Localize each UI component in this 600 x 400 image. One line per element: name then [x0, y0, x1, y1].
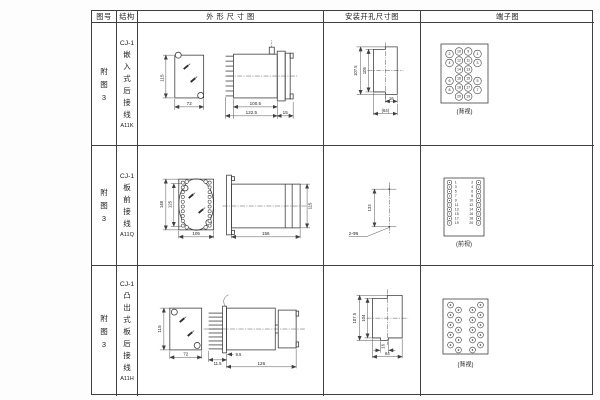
type-code-label: A11Q	[120, 232, 134, 238]
terminal-circle	[208, 219, 211, 222]
cutout-shape	[368, 42, 404, 98]
terminal-number: 17	[455, 217, 459, 221]
terminal-dot	[478, 218, 479, 219]
terminal-number: 4	[449, 61, 451, 65]
hole-dimensions: 133 2-Φ6	[349, 189, 389, 237]
type-code-label: A11H	[120, 376, 134, 382]
terminal-number: 19	[466, 95, 470, 99]
outline-cell-a11h: 115 72 11.5 9.5	[138, 266, 324, 396]
dim-width: 105	[192, 231, 200, 236]
terminal-number: 16	[457, 77, 461, 81]
terminal-dot	[449, 182, 450, 183]
cutout-dimensions: 107.5 104 16 64	[352, 295, 402, 358]
side-view	[226, 40, 298, 101]
terminal-number: 6	[471, 190, 473, 194]
dim-notch-width: 16	[389, 96, 394, 101]
outline-diagram-a11h: 115 72 11.5 9.5	[138, 266, 323, 396]
terminal-dot	[458, 339, 460, 341]
mounting-diagram-a11k: 107.5 105 16 (64)	[324, 23, 420, 146]
terminal-dot	[449, 213, 450, 214]
terminal-dot	[472, 319, 474, 321]
terminal-dot	[449, 222, 450, 223]
terminal-dot	[478, 209, 479, 210]
terminal-dot	[480, 314, 482, 316]
structure-row1: CJ-1 嵌入式后接线 A11K	[117, 23, 138, 146]
terminal-number: 12	[457, 59, 461, 63]
terminal-number: 13	[455, 208, 459, 212]
terminal-cell-a11k: 2468101214161820911131517191357 (背视)	[421, 23, 594, 146]
figure-no-text: 附图3	[100, 65, 108, 104]
mounting-diagram-a11h: 107.5 104 16 64	[324, 266, 420, 396]
dim-body-length: 100.5	[250, 101, 262, 106]
model-label: CJ-1	[120, 281, 134, 288]
terminal-dot	[450, 344, 452, 346]
terminal-diagram-a11h: (背视)	[421, 266, 594, 396]
terminal-dot	[480, 304, 482, 306]
terminal-dot	[478, 200, 479, 201]
dim-inner-height: 104	[361, 314, 366, 322]
terminal-circle	[181, 195, 184, 198]
terminal-circle	[208, 205, 211, 208]
terminal-number: 4	[471, 185, 473, 189]
terminal-dot	[472, 349, 474, 351]
terminal-dot	[480, 334, 482, 336]
terminal-number: 2	[471, 181, 473, 185]
terminal-number: 2	[449, 52, 451, 56]
terminal-dot	[450, 314, 452, 316]
terminal-circle	[181, 224, 184, 227]
mounting-cell-a11h: 107.5 104 16 64	[324, 266, 421, 396]
terminal-dot	[449, 218, 450, 219]
terminal-circle	[181, 186, 184, 189]
terminal-dot	[449, 191, 450, 192]
side-dimensions: 100.5 122.5 15	[226, 97, 294, 119]
terminal-number: 18	[469, 217, 473, 221]
terminal-number: 8	[471, 194, 473, 198]
terminal-dot	[480, 344, 482, 346]
terminal-grid-a11k: 2468101214161820911131517191357	[446, 48, 482, 101]
terminal-dot	[449, 204, 450, 205]
structure-label: 板前接线	[123, 182, 131, 230]
header-structure: 结构	[117, 11, 138, 23]
dim-front-width: 72	[183, 352, 189, 357]
hole-marks	[382, 182, 396, 233]
terminal-circle	[208, 191, 211, 194]
terminal-dot	[450, 324, 452, 326]
terminal-number: 20	[469, 221, 473, 225]
terminal-dot	[472, 329, 474, 331]
mounting-cell-a11q: 133 2-Φ6	[324, 146, 421, 266]
view-label: (背视)	[458, 361, 474, 369]
terminal-dot	[449, 195, 450, 196]
view-label: (前视)	[456, 240, 472, 248]
terminal-circle	[181, 219, 184, 222]
dim-flange: 15	[283, 110, 289, 115]
structure-label: 凸出式板后接线	[123, 290, 131, 374]
terminal-circle	[208, 200, 211, 203]
dim-outer-height: 107.5	[352, 312, 357, 323]
figure-no-text: 附图3	[100, 186, 108, 225]
figure-no-row3: 附图3	[92, 266, 117, 396]
terminal-number: 10	[469, 199, 473, 203]
hole-callout: 2-Φ6	[349, 231, 359, 236]
structure-row2: CJ-1 板前接线 A11Q	[117, 146, 138, 266]
terminal-number: 5	[477, 79, 479, 83]
dim-total-width: 64	[385, 351, 390, 356]
terminal-circle	[208, 195, 211, 198]
terminal-cell-a11q: 1357911131517192468101214161820 (前视)	[421, 146, 594, 266]
terminal-circle	[208, 210, 211, 213]
terminal-number: 19	[455, 221, 459, 225]
terminal-diagram-a11k: 2468101214161820911131517191357 (背视)	[421, 23, 594, 146]
terminal-dot	[458, 329, 460, 331]
figure-no-row2: 附图3	[92, 146, 117, 266]
terminal-dot	[472, 339, 474, 341]
terminal-dot	[458, 319, 460, 321]
mounting-diagram-a11q: 133 2-Φ6	[324, 146, 420, 266]
terminal-number: 10	[457, 50, 461, 54]
dim-total-width: (64)	[382, 108, 390, 113]
view-label: (背视)	[457, 108, 473, 116]
dim-height: 115	[308, 202, 313, 209]
structure-row3: CJ-1 凸出式板后接线 A11H	[117, 266, 138, 396]
terminal-number: 9	[455, 199, 457, 203]
terminal-number: 6	[449, 79, 451, 83]
terminal-number: 14	[469, 208, 473, 212]
side-view	[223, 175, 308, 235]
terminal-dot	[478, 213, 479, 214]
terminal-dot	[458, 349, 460, 351]
figure-no-row1: 附图3	[92, 23, 117, 146]
dim-front-width: 72	[187, 101, 193, 106]
terminal-number: 18	[457, 86, 461, 90]
header-terminal: 端子图	[421, 11, 594, 23]
terminal-dot	[449, 200, 450, 201]
terminal-circle	[181, 205, 184, 208]
terminal-cell-a11h: (背视)	[421, 266, 594, 396]
terminal-number: 9	[467, 50, 469, 54]
spec-table: 图号 结构 外 形 尺 寸 图 安装开孔尺寸图 端子图 附图3 CJ-1 嵌入式…	[91, 10, 593, 395]
mounting-cell-a11k: 107.5 105 16 (64)	[324, 23, 421, 146]
outline-cell-a11k: 115 72 100.5 122.5	[138, 23, 324, 146]
header-outline: 外 形 尺 寸 图	[138, 11, 324, 23]
terminal-number: 3	[455, 185, 457, 189]
terminal-dot	[472, 309, 474, 311]
terminal-number: 12	[469, 203, 473, 207]
terminal-number: 7	[455, 194, 457, 198]
dim-length: 156	[262, 231, 270, 236]
outline-diagram-a11k: 115 72 100.5 122.5	[138, 23, 323, 146]
terminal-dot	[478, 204, 479, 205]
front-view	[175, 52, 204, 98]
dim-length: 126	[258, 361, 266, 366]
structure-label: 嵌入式后接线	[123, 49, 131, 121]
terminal-circle	[181, 200, 184, 203]
terminal-number: 15	[466, 77, 470, 81]
terminal-number: 1	[477, 52, 479, 56]
terminal-dot	[478, 222, 479, 223]
terminal-number: 17	[466, 86, 470, 90]
terminal-number: 1	[455, 181, 457, 185]
terminal-dot	[478, 182, 479, 183]
terminal-circle	[208, 186, 211, 189]
terminal-number: 11	[466, 59, 470, 63]
dim-front-height: 115	[157, 325, 162, 333]
terminal-dot	[450, 304, 452, 306]
model-label: CJ-1	[120, 173, 134, 180]
terminal-number: 14	[457, 68, 461, 72]
front-dimensions: 115 72	[157, 308, 202, 359]
header-mounting: 安装开孔尺寸图	[324, 11, 421, 23]
terminal-dot	[478, 191, 479, 192]
terminal-dot	[450, 334, 452, 336]
terminal-number: 20	[457, 95, 461, 99]
figure-no-text: 附图3	[100, 312, 108, 351]
terminal-circle	[208, 214, 211, 217]
terminal-number: 5	[455, 190, 457, 194]
type-code-label: A11K	[120, 123, 133, 129]
dim-inner-height: 125	[167, 200, 172, 208]
terminal-circle	[181, 214, 184, 217]
terminal-dot	[480, 324, 482, 326]
dim-outer-height: 107.5	[353, 65, 358, 76]
terminal-grid-a11q: 1357911131517192468101214161820	[447, 180, 481, 225]
dim-inner-height: 105	[362, 66, 367, 74]
outline-diagram-a11q: 148 125 105 156 115	[138, 146, 323, 266]
terminal-circle	[181, 191, 184, 194]
dim-offset: 9.5	[235, 352, 242, 357]
terminal-number: 11	[455, 203, 459, 207]
terminal-circle	[208, 181, 211, 184]
terminal-number: 7	[477, 88, 479, 92]
cutout-shape	[367, 289, 409, 344]
terminal-number: 3	[477, 61, 479, 65]
cutout-dimensions: 107.5 105 16 (64)	[353, 47, 397, 115]
dim-pin-length: 11.5	[214, 361, 223, 366]
dim-front-height: 115	[159, 74, 164, 82]
terminal-diagram-a11q: 1357911131517192468101214161820 (前视)	[421, 146, 594, 266]
terminal-number: 15	[455, 212, 459, 216]
terminal-number: 13	[466, 68, 470, 72]
front-dimensions: 115 72	[159, 55, 203, 110]
terminal-dot	[458, 309, 460, 311]
terminal-circle	[208, 224, 211, 227]
side-dimensions: 11.5 9.5 126	[209, 349, 297, 368]
dim-hole-pitch: 133	[367, 204, 372, 212]
model-label: CJ-1	[120, 40, 134, 47]
dim-outer-height: 148	[159, 200, 164, 208]
terminal-circle	[181, 210, 184, 213]
outline-cell-a11q: 148 125 105 156 115	[138, 146, 324, 266]
header-figure-no: 图号	[92, 11, 117, 23]
terminal-number: 16	[469, 212, 473, 216]
terminal-number: 8	[449, 88, 451, 92]
front-view	[179, 179, 214, 230]
terminal-dot	[449, 209, 450, 210]
drawing-sheet: 图号 结构 外 形 尺 寸 图 安装开孔尺寸图 端子图 附图3 CJ-1 嵌入式…	[0, 0, 600, 400]
front-view	[170, 308, 202, 350]
terminal-dot	[478, 195, 479, 196]
dim-notch-width: 16	[380, 343, 385, 348]
terminal-dot	[478, 186, 479, 187]
terminal-grid-a11h	[448, 302, 484, 353]
terminal-dot	[449, 186, 450, 187]
dim-total-length: 122.5	[246, 110, 258, 115]
side-view	[204, 295, 305, 353]
